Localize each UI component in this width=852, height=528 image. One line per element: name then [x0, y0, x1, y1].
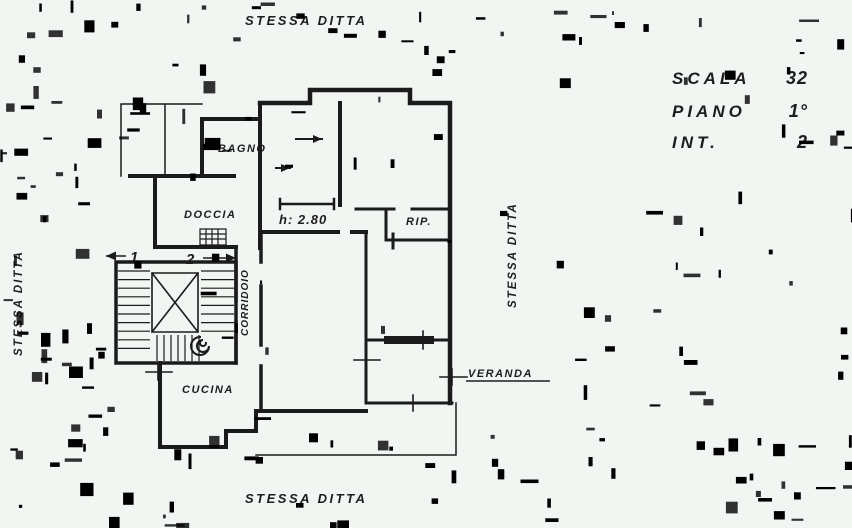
apartment-walls: [116, 90, 467, 455]
doccia-label: DOCCIA: [184, 209, 236, 221]
int-label: INT.: [672, 133, 719, 152]
bedroom-height-label: h: 2.80: [279, 212, 327, 227]
flight2-number: 2: [185, 251, 195, 268]
stamp-bottom: STESSA DITTA: [245, 491, 367, 506]
info-block: SCALA 32 PIANO 1° INT. 2: [672, 68, 808, 152]
piano-value: 1°: [789, 101, 808, 121]
floor-plan-scan: STESSA DITTA STESSA DITTA STESSA DITTA S…: [0, 0, 852, 528]
veranda-walls: [366, 337, 452, 403]
stair-spiral-mark: [191, 337, 209, 355]
stamp-annotations: STESSA DITTA STESSA DITTA STESSA DITTA S…: [13, 13, 519, 506]
stamp-top: STESSA DITTA: [245, 13, 367, 28]
veranda-label: VERANDA: [468, 368, 533, 380]
rip-closet-walls: [356, 209, 450, 248]
window-cross-veranda-right: [440, 369, 467, 385]
wardrobe-line: [280, 199, 334, 209]
terrace-lines: [121, 104, 202, 176]
corridoio-label: CORRIDOIO: [240, 269, 251, 336]
cucina-label: CUCINA: [182, 384, 234, 396]
stair-treads: [118, 271, 234, 361]
rip-label: RIP.: [406, 216, 432, 228]
floor-plan-drawing: STESSA DITTA STESSA DITTA STESSA DITTA S…: [0, 0, 852, 528]
outer-wall: [260, 90, 450, 403]
shower-grid: [200, 229, 226, 245]
stamp-left: STESSA DITTA: [13, 250, 25, 356]
scala-label: SCALA: [672, 69, 751, 88]
elevator-shaft: [152, 273, 198, 332]
bedroom-arrow-marks: [276, 139, 322, 168]
window-cross-veranda-bottom: [403, 395, 423, 411]
window-cross-veranda-top: [413, 331, 433, 349]
flight1-arrow-head: [106, 252, 116, 261]
stamp-right: STESSA DITTA: [507, 202, 519, 308]
bagno-label: BAGNO: [218, 143, 266, 155]
kitchen-walls: [160, 363, 256, 447]
piano-label: PIANO: [672, 102, 746, 121]
